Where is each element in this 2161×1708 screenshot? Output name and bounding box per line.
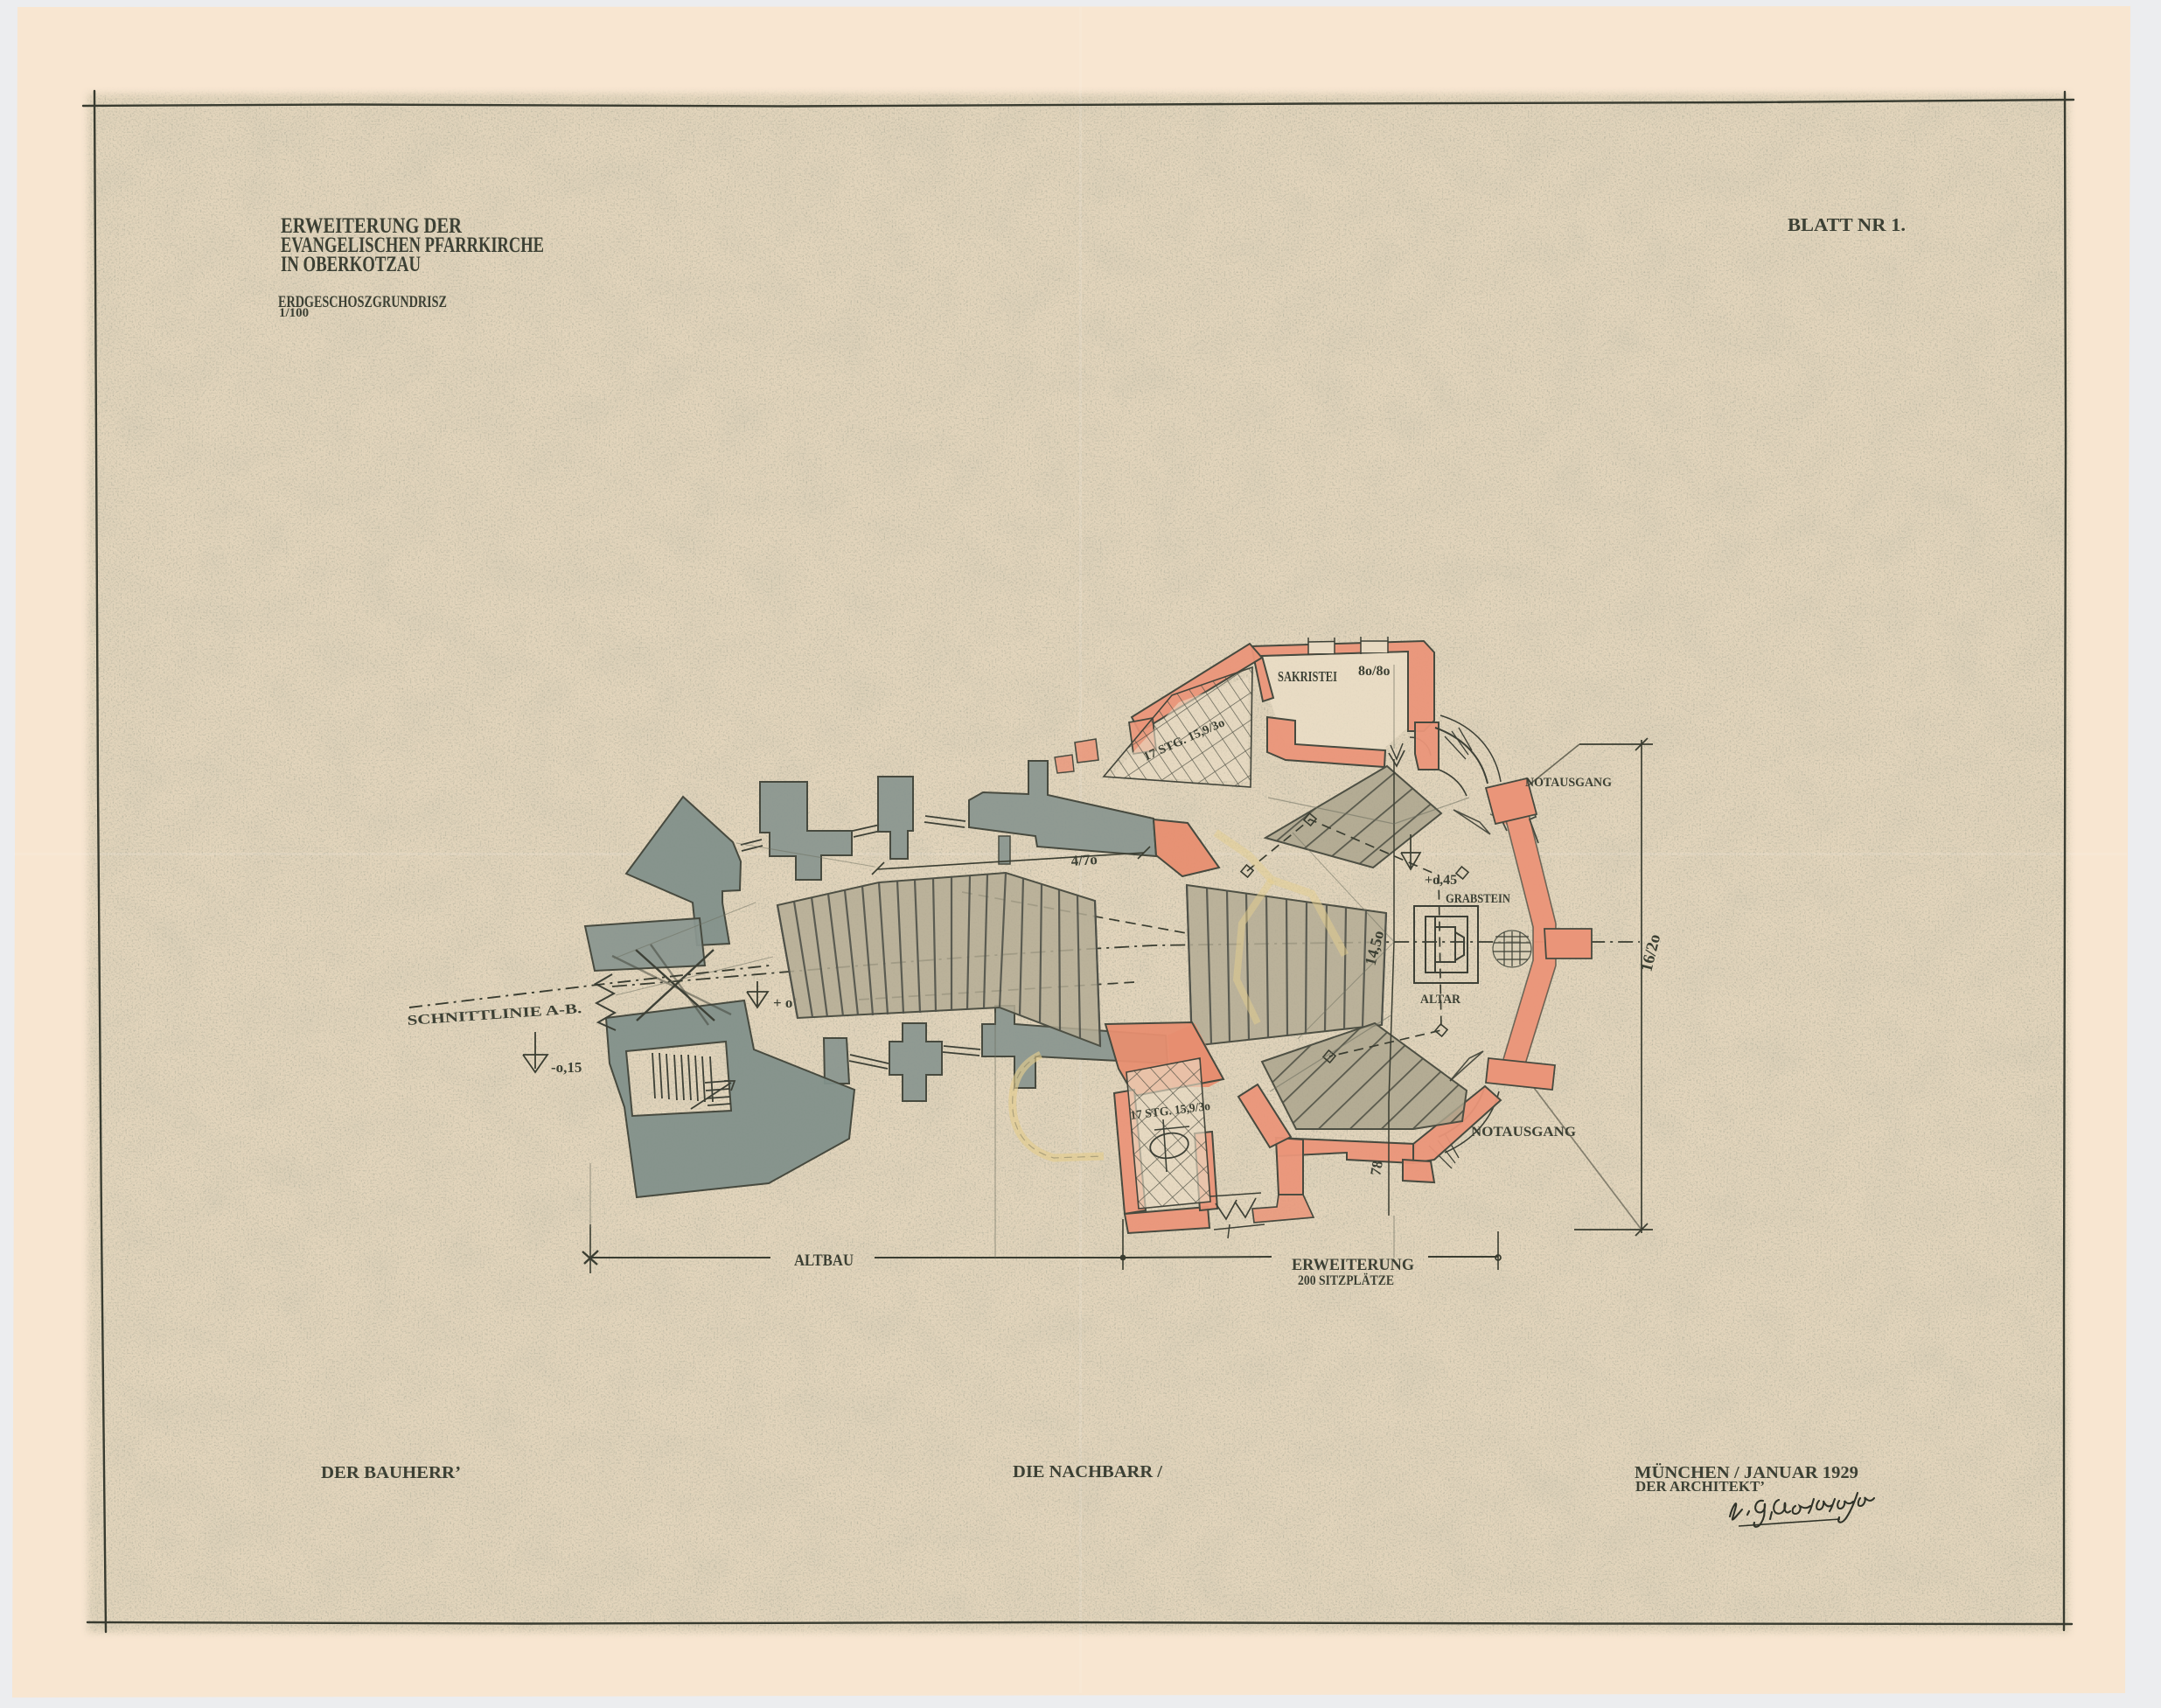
svg-text:NOTAUSGANG: NOTAUSGANG [1471, 1125, 1577, 1140]
svg-text:GRABSTEIN: GRABSTEIN [1446, 892, 1510, 906]
svg-text:DER BAUHERR’: DER BAUHERR’ [321, 1463, 461, 1482]
svg-text:1/100: 1/100 [279, 306, 309, 320]
svg-text:SAKRISTEI: SAKRISTEI [1278, 668, 1337, 685]
svg-text:4/7o: 4/7o [1070, 851, 1098, 869]
svg-text:IN OBERKOTZAU: IN OBERKOTZAU [281, 253, 421, 276]
svg-text:NOTAUSGANG: NOTAUSGANG [1525, 776, 1612, 790]
svg-text:78: 78 [1367, 1160, 1386, 1177]
svg-text:8o/8o: 8o/8o [1358, 664, 1390, 679]
svg-text:ALTBAU: ALTBAU [794, 1251, 854, 1270]
svg-text:ALTAR: ALTAR [1420, 993, 1460, 1007]
svg-text:DIE NACHBARR /: DIE NACHBARR / [1013, 1462, 1162, 1481]
svg-text:+o,45: +o,45 [1425, 873, 1457, 888]
svg-text:BLATT NR 1.: BLATT NR 1. [1788, 214, 1906, 235]
svg-text:200 SITZPLÄTZE: 200 SITZPLÄTZE [1298, 1272, 1394, 1288]
svg-text:-o,15: -o,15 [551, 1059, 582, 1076]
svg-text:ERWEITERUNG: ERWEITERUNG [1292, 1256, 1414, 1274]
svg-text:DER ARCHITEKT’: DER ARCHITEKT’ [1635, 1478, 1765, 1495]
